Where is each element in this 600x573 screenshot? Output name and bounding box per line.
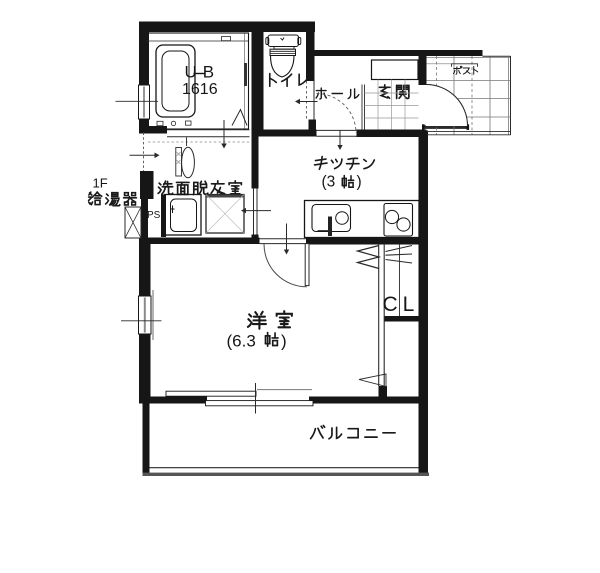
svg-text:1616: 1616: [182, 81, 218, 98]
svg-text:): ): [281, 332, 287, 351]
svg-text:): ): [357, 174, 362, 191]
svg-text:PS: PS: [147, 210, 161, 221]
svg-text:(3: (3: [322, 174, 336, 191]
svg-text:CL: CL: [383, 293, 420, 316]
svg-text:(6.3: (6.3: [227, 332, 256, 351]
svg-text:1F: 1F: [93, 176, 108, 191]
svg-text:UB: UB: [185, 63, 221, 82]
